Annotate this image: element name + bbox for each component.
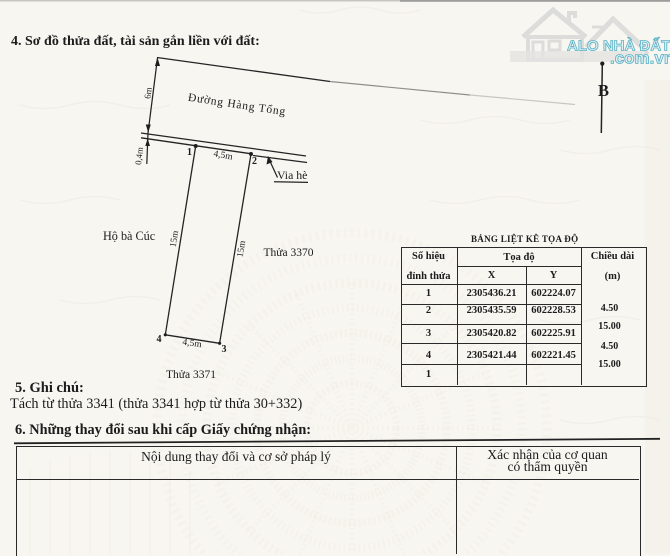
svg-text:.com.vn: .com.vn [610,49,670,68]
